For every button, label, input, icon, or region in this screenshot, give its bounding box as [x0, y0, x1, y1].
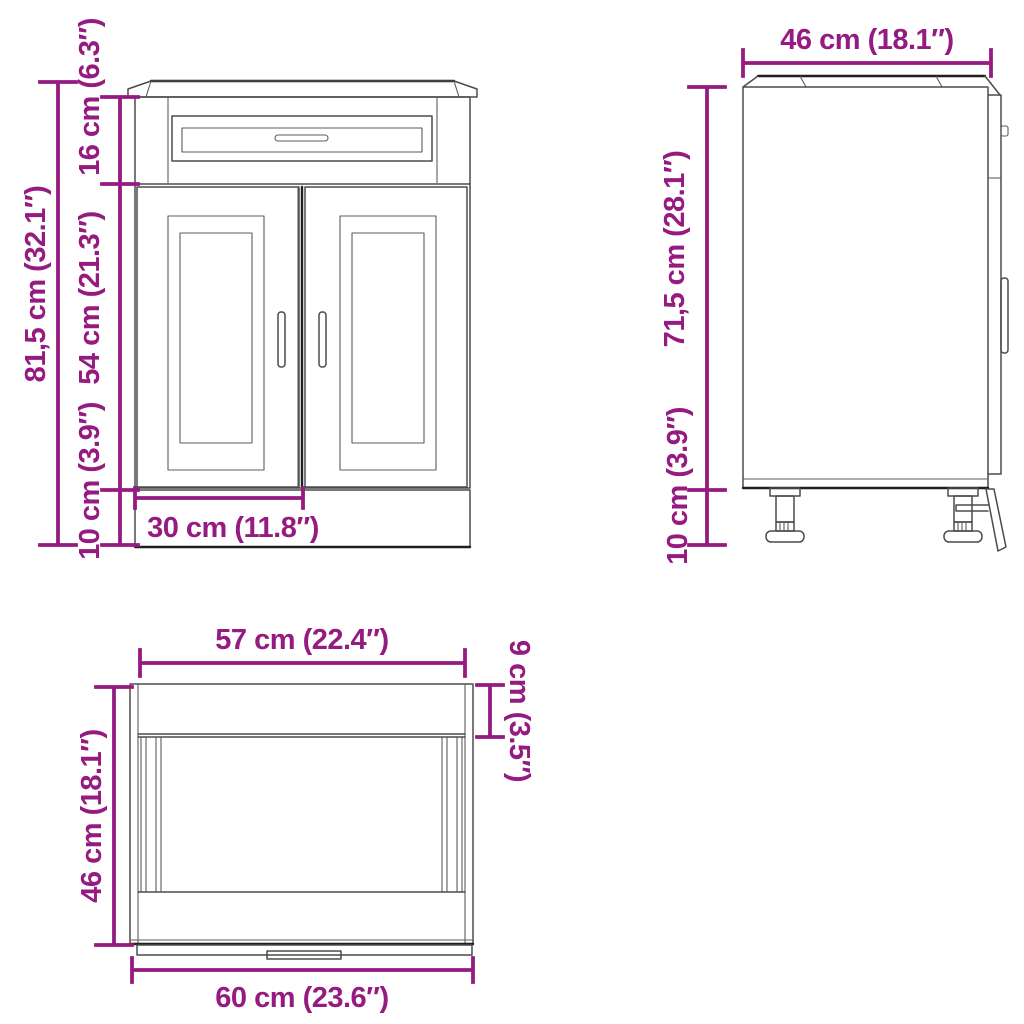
drawer-front-frame: [172, 116, 432, 161]
door-edge-strip: [988, 95, 1001, 474]
dim-label-leg-height: 10 cm (3.9″): [662, 407, 694, 565]
side-top-corners: [743, 76, 1000, 95]
dim-label-total-height: 81,5 cm (32.1″): [20, 186, 52, 383]
plan-back-band: [138, 734, 465, 737]
front-view: [128, 81, 477, 547]
left-door-frame: [168, 216, 264, 470]
drawer-handle: [275, 135, 328, 141]
dim-line-total-width: [132, 958, 473, 982]
dim-label-door-height: 54 cm (21.3″): [74, 211, 106, 384]
dim-label-body-height: 71,5 cm (28.1″): [659, 151, 691, 348]
technical-drawing-page: 81,5 cm (32.1″) 16 cm (6.3″) 54 cm (21.3…: [0, 0, 1024, 1024]
right-door-panel: [352, 233, 424, 443]
dim-line-side-heights: [689, 87, 725, 545]
top-view: [130, 684, 473, 959]
dim-label-total-width: 60 cm (23.6″): [215, 982, 388, 1014]
plan-front-edge: [137, 945, 472, 955]
plan-side-panels: [138, 684, 465, 944]
dim-line-height-segments: [102, 97, 138, 545]
side-body: [743, 87, 988, 488]
right-door: [305, 187, 467, 487]
dim-line-door-width: [135, 488, 303, 508]
dim-label-door-width: 30 cm (11.8″): [147, 512, 319, 544]
right-door-handle: [319, 312, 326, 367]
side-knob: [1001, 126, 1008, 136]
side-view: [743, 76, 1008, 551]
plan-left-rails: [141, 737, 161, 892]
dim-label-plan-depth: 46 cm (18.1″): [76, 729, 108, 902]
dim-label-top-section-height: 16 cm (6.3″): [74, 18, 106, 176]
plinth-board: [986, 489, 1006, 551]
cabinet-technical-drawing: 81,5 cm (32.1″) 16 cm (6.3″) 54 cm (21.3…: [0, 0, 1024, 1024]
side-door-handle: [1001, 278, 1008, 353]
drawer-front-panel: [182, 128, 422, 152]
plan-body: [130, 684, 473, 944]
left-door: [137, 187, 299, 487]
right-door-frame: [340, 216, 436, 470]
adjustable-foot-right: [944, 488, 982, 542]
adjustable-foot-left: [766, 488, 804, 542]
side-top-notches: [800, 76, 942, 87]
worktop-rim: [128, 81, 477, 97]
plan-right-rails: [442, 737, 462, 892]
dim-label-inner-width: 57 cm (22.4″): [215, 624, 388, 656]
dim-label-depth: 46 cm (18.1″): [780, 24, 953, 56]
dim-label-plinth-height: 10 cm (3.9″): [74, 402, 106, 560]
dim-line-top-band: [477, 685, 503, 737]
dim-label-top-band-depth: 9 cm (3.5″): [503, 640, 535, 782]
side-view-dimensions: 46 cm (18.1″) 71,5 cm (28.1″) 10 cm (3.9…: [659, 24, 991, 565]
front-view-dimensions: 81,5 cm (32.1″) 16 cm (6.3″) 54 cm (21.3…: [20, 18, 319, 560]
worktop-corner-lines: [146, 81, 459, 97]
left-door-handle: [278, 312, 285, 367]
left-door-panel: [180, 233, 252, 443]
